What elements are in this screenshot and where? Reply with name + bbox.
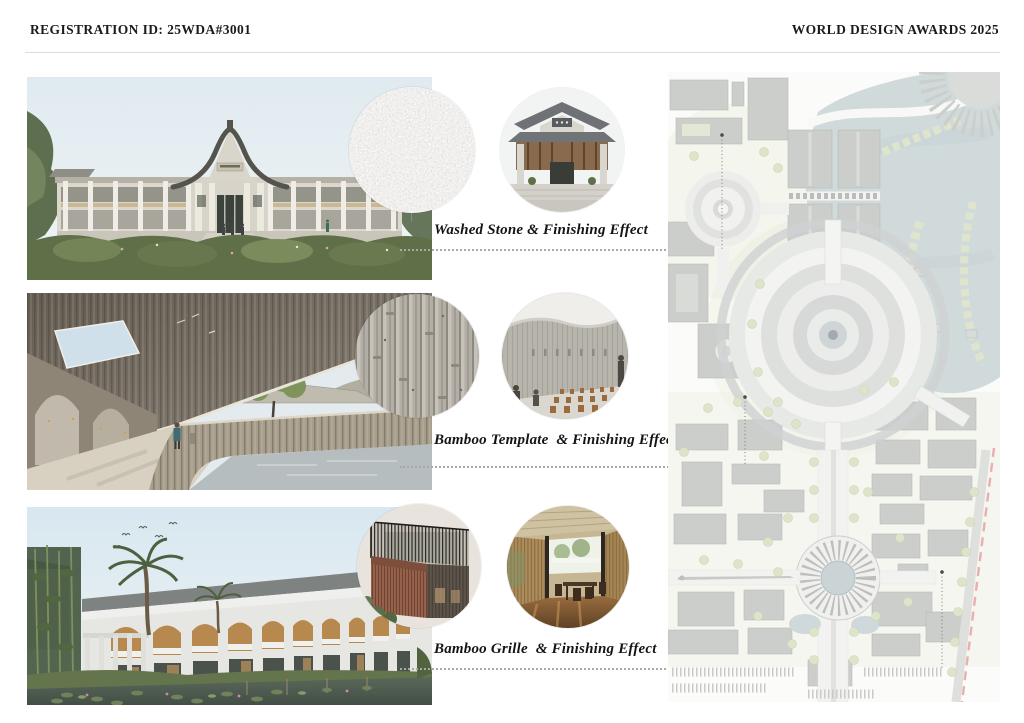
caption-bamboo-template: Bamboo Template & Finishing Effect bbox=[434, 432, 677, 449]
bamboo-grille-texture-swatch bbox=[357, 504, 481, 628]
bamboo-interior-photo bbox=[507, 506, 629, 628]
bamboo-formwork-concrete-texture-swatch bbox=[355, 294, 479, 418]
leader-stem bbox=[411, 213, 412, 222]
site-master-plan bbox=[668, 72, 1000, 702]
awards-title: WORLD DESIGN AWARDS 2025 bbox=[792, 22, 999, 38]
caption-washed-stone: Washed Stone & Finishing Effect bbox=[434, 222, 648, 239]
washed-stone-texture-swatch bbox=[349, 87, 475, 213]
header-divider bbox=[25, 52, 1000, 53]
presentation-board: REGISTRATION ID: 25WDA#3001 WORLD DESIGN… bbox=[0, 0, 1024, 723]
temple-facade-photo bbox=[500, 88, 624, 212]
concrete-hall-interior-photo bbox=[502, 293, 628, 419]
caption-bamboo-grille: Bamboo Grille & Finishing Effect bbox=[434, 641, 657, 658]
registration-id: REGISTRATION ID: 25WDA#3001 bbox=[30, 22, 251, 38]
